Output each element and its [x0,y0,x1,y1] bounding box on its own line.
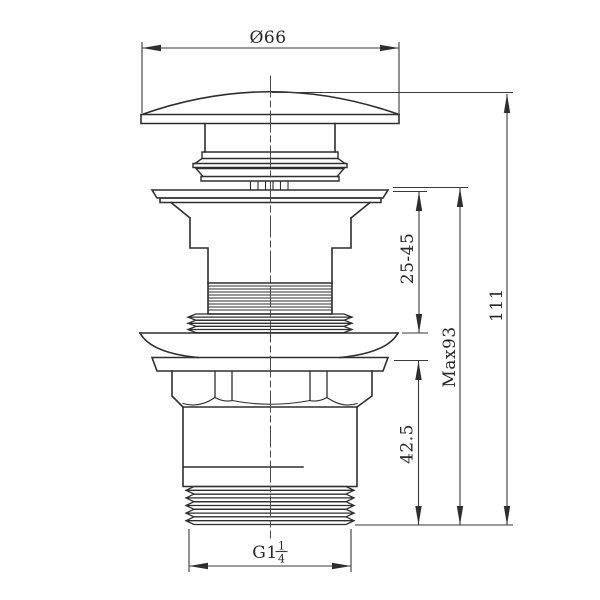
dim-clamp-range-label: 25-45 [398,233,418,285]
arrow-down-icon [457,506,463,525]
dim-tail-length-label: 42.5 [398,424,418,464]
arrow-up-icon [504,94,510,113]
dimension-texts: Ø66 25-45 Max93 111 42.5 G1 1 4 [249,28,507,566]
arrow-down-icon [504,506,510,525]
arrow-left-icon [142,45,161,51]
arrow-right-icon [380,45,399,51]
extension-lines-right [272,93,513,526]
drain-drawing-svg: Ø66 25-45 Max93 111 42.5 G1 1 4 [0,0,600,600]
arrow-left-icon [189,563,208,569]
arrow-down-icon [416,314,422,333]
arrow-up-icon [457,188,463,207]
technical-drawing-canvas: Ø66 25-45 Max93 111 42.5 G1 1 4 [0,0,600,600]
arrow-right-icon [332,563,351,569]
part-outline [140,76,399,538]
dim-max-height-label: Max93 [440,326,460,387]
arrow-up-icon [415,361,421,380]
dim-thread-prefix-label: G1 [252,543,277,563]
arrow-up-icon [416,192,422,211]
arrow-down-icon [415,506,421,525]
dish-washer [140,333,398,371]
spline-teeth [251,181,289,190]
dim-thread-fraction-numerator: 1 [278,540,285,553]
dim-total-height-label: 111 [487,288,507,322]
hex-nut-outline [172,371,372,407]
dim-thread-fraction-denominator: 4 [278,553,285,566]
dim-cap-diameter-label: Ø66 [249,28,286,48]
hex-nut [172,371,372,407]
dish-curves [140,333,398,358]
